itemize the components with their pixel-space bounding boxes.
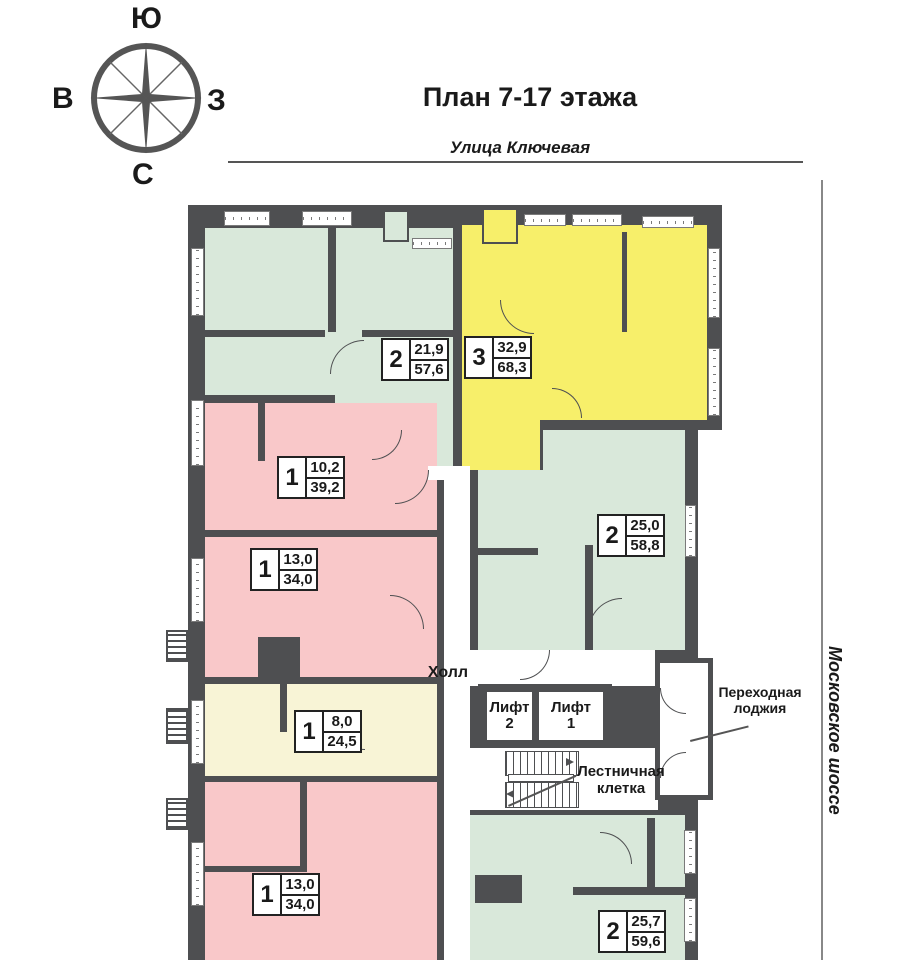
apartment-fill-green-mid-top bbox=[543, 430, 685, 470]
living-area: 25,0 bbox=[627, 516, 663, 537]
compass-west-label: З bbox=[207, 84, 226, 118]
total-area: 57,6 bbox=[411, 361, 447, 380]
elevator-1: Лифт 1 bbox=[539, 692, 603, 740]
living-area: 21,9 bbox=[411, 340, 447, 361]
total-area: 59,6 bbox=[628, 933, 664, 952]
wall bbox=[573, 887, 685, 895]
total-area: 34,0 bbox=[282, 896, 318, 915]
living-area: 8,0 bbox=[324, 712, 360, 733]
wall bbox=[300, 782, 307, 866]
window bbox=[412, 238, 452, 249]
elevator-2-number: 2 bbox=[505, 716, 513, 733]
window bbox=[524, 214, 566, 226]
living-area: 13,0 bbox=[280, 550, 316, 571]
apartment-fill-yellow bbox=[462, 225, 707, 428]
wall bbox=[205, 776, 437, 782]
apartment-label-2room-top: 2 21,9 57,6 bbox=[381, 338, 449, 381]
rooms-count: 2 bbox=[383, 340, 411, 379]
rooms-count: 2 bbox=[600, 912, 628, 951]
total-area: 58,8 bbox=[627, 537, 663, 556]
total-area: 39,2 bbox=[307, 479, 343, 498]
ac-basket bbox=[166, 630, 188, 662]
rooms-count: 2 bbox=[599, 516, 627, 555]
window bbox=[191, 400, 204, 466]
compass-south-label: Ю bbox=[131, 2, 162, 36]
window bbox=[708, 248, 720, 318]
wall bbox=[647, 818, 655, 890]
loggia-label: Переходная лоджия bbox=[712, 684, 808, 716]
window bbox=[708, 348, 720, 416]
compass-rose bbox=[88, 40, 204, 156]
staircase-label-line2: клетка bbox=[575, 780, 667, 797]
page-title: План 7-17 этажа bbox=[350, 82, 710, 113]
hall-area bbox=[470, 650, 655, 686]
apartment-label-1room-b: 1 13,0 34,0 bbox=[250, 548, 318, 591]
hall-label: Холл bbox=[424, 664, 472, 682]
living-area: 32,9 bbox=[494, 338, 530, 359]
corridor-entry bbox=[428, 466, 470, 480]
entry-niche-yellow bbox=[482, 208, 518, 244]
ac-basket bbox=[166, 798, 188, 830]
living-area: 10,2 bbox=[307, 458, 343, 479]
window bbox=[224, 211, 270, 226]
street-line-top bbox=[228, 161, 803, 163]
staircase-label: Лестничная клетка bbox=[575, 763, 667, 798]
window bbox=[191, 842, 204, 906]
rooms-count: 1 bbox=[252, 550, 280, 589]
elevator-1-word: Лифт bbox=[551, 700, 591, 717]
wall bbox=[205, 330, 325, 337]
window bbox=[191, 558, 204, 622]
wall bbox=[328, 228, 336, 332]
compass-icon bbox=[88, 40, 204, 156]
window bbox=[642, 216, 694, 228]
apartment-label-1room-c: 1 8,0 24,5 bbox=[294, 710, 362, 753]
loggia-label-line1: Переходная bbox=[712, 684, 808, 700]
entry-niche-green bbox=[383, 210, 409, 242]
window bbox=[302, 211, 352, 226]
wall bbox=[205, 866, 307, 872]
corridor bbox=[444, 478, 470, 960]
apartment-label-1room-a: 1 10,2 39,2 bbox=[277, 456, 345, 499]
elevator-2-word: Лифт bbox=[489, 700, 529, 717]
window bbox=[572, 214, 622, 226]
living-area: 25,7 bbox=[628, 912, 664, 933]
living-area: 13,0 bbox=[282, 875, 318, 896]
wall bbox=[478, 548, 538, 555]
wall bbox=[362, 330, 453, 337]
window bbox=[191, 700, 204, 764]
total-area: 34,0 bbox=[280, 571, 316, 590]
window bbox=[685, 505, 696, 557]
wall bbox=[205, 677, 437, 684]
apartment-label-3room-top: 3 32,9 68,3 bbox=[464, 336, 532, 379]
wall bbox=[205, 530, 437, 537]
wall bbox=[622, 232, 627, 332]
wall bbox=[280, 684, 287, 732]
apartment-label-2room-bottom: 2 25,7 59,6 bbox=[598, 910, 666, 953]
total-area: 68,3 bbox=[494, 359, 530, 378]
window bbox=[684, 830, 696, 874]
rooms-count: 3 bbox=[466, 338, 494, 377]
elevator-2: Лифт 2 bbox=[487, 692, 532, 740]
ac-basket bbox=[166, 708, 188, 744]
apartment-label-1room-d: 1 13,0 34,0 bbox=[252, 873, 320, 916]
compass-north-label: С bbox=[132, 158, 154, 192]
apartment-label-2room-mid: 2 25,0 58,8 bbox=[597, 514, 665, 557]
rooms-count: 1 bbox=[254, 875, 282, 914]
window bbox=[684, 898, 696, 942]
loggia-label-line2: лоджия bbox=[712, 700, 808, 716]
total-area: 24,5 bbox=[324, 733, 360, 752]
wall bbox=[258, 403, 265, 461]
wall bbox=[205, 395, 335, 403]
apartment-fill-green-mid bbox=[478, 470, 685, 650]
apartment-fill-yellow-hall bbox=[462, 428, 540, 470]
compass-east-label: В bbox=[52, 82, 74, 116]
stairs-arrow-left-icon bbox=[506, 790, 514, 798]
rooms-count: 1 bbox=[279, 458, 307, 497]
wall bbox=[585, 545, 593, 650]
floor-plan-page: План 7-17 этажа Улица Ключевая Московско… bbox=[0, 0, 918, 960]
utility-shaft bbox=[475, 875, 522, 903]
staircase-label-line1: Лестничная bbox=[575, 763, 667, 780]
wall bbox=[540, 420, 707, 430]
elevator-1-number: 1 bbox=[567, 716, 575, 733]
street-label-top: Улица Ключевая bbox=[420, 138, 620, 158]
stairs-arrow-right-icon bbox=[566, 758, 574, 766]
window bbox=[191, 248, 204, 316]
utility-shaft bbox=[258, 637, 300, 684]
stairs-lower-flight bbox=[505, 782, 579, 808]
street-line-side bbox=[821, 180, 823, 960]
street-label-side: Московское шоссе bbox=[824, 585, 845, 875]
rooms-count: 1 bbox=[296, 712, 324, 751]
